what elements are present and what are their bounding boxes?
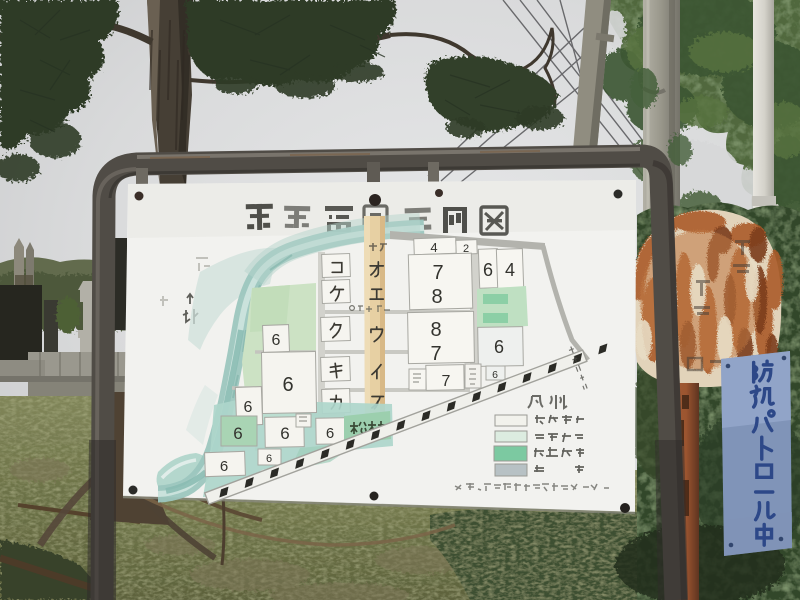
svg-text:7: 7 bbox=[442, 373, 451, 390]
svg-text:8: 8 bbox=[431, 286, 442, 308]
svg-text:7: 7 bbox=[430, 343, 441, 365]
svg-text:6: 6 bbox=[266, 453, 272, 465]
svg-text:2: 2 bbox=[463, 243, 469, 255]
svg-text:6: 6 bbox=[244, 399, 253, 416]
svg-text:7: 7 bbox=[432, 262, 443, 284]
svg-text:6: 6 bbox=[272, 332, 281, 349]
svg-text:4: 4 bbox=[430, 240, 437, 255]
svg-text:4: 4 bbox=[505, 260, 515, 280]
svg-text:6: 6 bbox=[220, 458, 228, 475]
svg-text:6: 6 bbox=[483, 260, 493, 280]
svg-text:6: 6 bbox=[494, 337, 504, 357]
svg-text:8: 8 bbox=[430, 319, 441, 341]
svg-text:6: 6 bbox=[492, 369, 498, 381]
svg-text:6: 6 bbox=[233, 424, 242, 443]
svg-text:6: 6 bbox=[282, 374, 293, 396]
svg-text:6: 6 bbox=[326, 425, 334, 442]
svg-text:6: 6 bbox=[280, 424, 289, 443]
